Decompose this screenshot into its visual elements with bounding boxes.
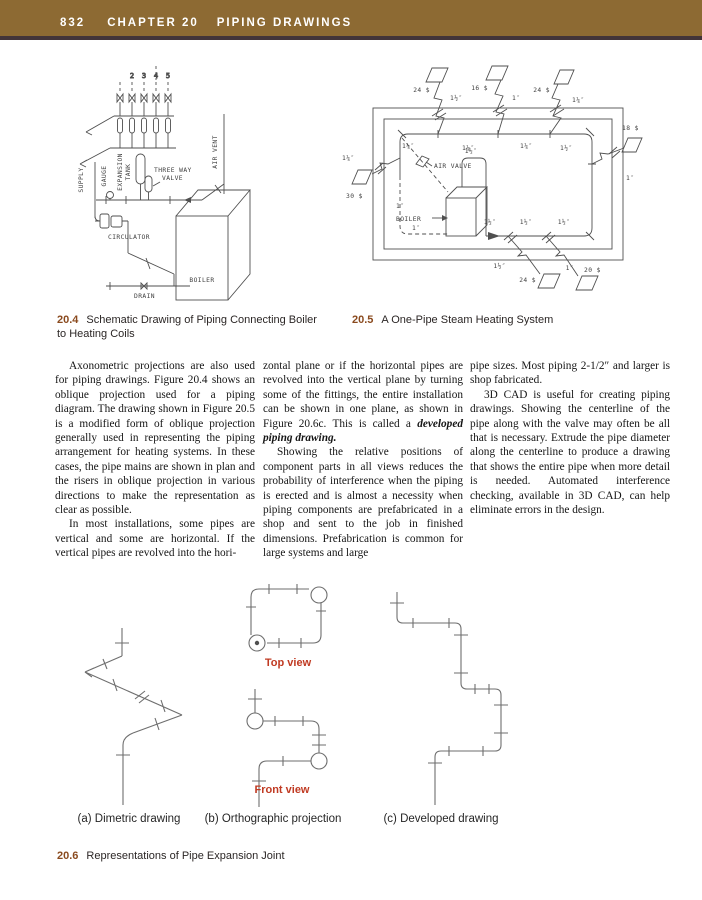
expansion-tank-label-line2: TANK xyxy=(125,164,132,181)
front-view-label: Front view xyxy=(254,784,309,796)
air-valve-label: AIR VALVE xyxy=(434,163,472,170)
radiator-right-label: 18 $ xyxy=(622,125,639,132)
paragraph: pipe sizes. Most piping 2-1/2″ and large… xyxy=(470,359,670,388)
circulator-label: CIRCULATOR xyxy=(108,234,150,241)
riser-right-size: 1″ xyxy=(626,175,634,182)
subfigure-label-a: (a) Dimetric drawing xyxy=(78,813,181,825)
riser-number-3: 3 xyxy=(142,72,146,80)
radiator-top1-label: 24 $ xyxy=(413,87,430,94)
paragraph: Showing the relative positions of compon… xyxy=(263,445,463,560)
body-column-3: pipe sizes. Most piping 2-1/2″ and large… xyxy=(470,359,670,517)
air-valve-symbol xyxy=(416,156,432,167)
chapter-title: PIPING DRAWINGS xyxy=(217,17,352,29)
three-way-valve-label-line2: VALVE xyxy=(162,175,183,182)
riser-top2-size: 1″ xyxy=(512,95,520,102)
bottom-main-size-3: 1½″ xyxy=(558,218,571,226)
main-size-3: 1¼″ xyxy=(520,142,533,150)
radiator-top3-label: 24 $ xyxy=(533,87,550,94)
paragraph: Axonometric projections are also used fo… xyxy=(55,359,255,517)
bottom-main-size-2: 1½″ xyxy=(520,218,533,226)
body-column-1: Axonometric projections are also used fo… xyxy=(55,359,255,561)
figure-20-6-drawing: Top view Front view (a) Dimetric drawing… xyxy=(45,565,685,845)
boiler-label: BOILER xyxy=(396,216,421,223)
drain-lines xyxy=(106,282,190,290)
radiator-left-label: 30 $ xyxy=(346,193,363,200)
expansion-tank-label-line1: EXPANSION xyxy=(117,153,124,191)
subfigure-label-c: (c) Developed drawing xyxy=(383,813,498,825)
chapter-header-bar: 832 CHAPTER 20 PIPING DRAWINGS xyxy=(0,0,702,40)
orthographic-top-view xyxy=(246,584,327,651)
figure-number-20-5: 20.5 xyxy=(352,314,373,326)
subfigure-label-b: (b) Orthographic projection xyxy=(205,813,342,825)
figure-caption-text-20-6: Representations of Pipe Expansion Joint xyxy=(86,850,284,862)
top-risers xyxy=(426,66,574,134)
textbook-page: 832 CHAPTER 20 PIPING DRAWINGS 2 3 4 5 xyxy=(0,0,702,900)
return-size-2: 1″ xyxy=(412,225,420,232)
figure-caption-20-5: 20.5A One-Pipe Steam Heating System xyxy=(352,313,652,327)
figure-number-20-6: 20.6 xyxy=(57,850,78,862)
figure-caption-20-4: 20.4Schematic Drawing of Piping Connecti… xyxy=(57,313,329,341)
developed-drawing xyxy=(390,592,508,805)
figure-caption-text-20-4: Schematic Drawing of Piping Connecting B… xyxy=(57,314,317,340)
boiler-label: BOILER xyxy=(189,277,214,284)
paragraph: zontal plane or if the horizontal pipes … xyxy=(263,359,463,445)
body-column-2: zontal plane or if the horizontal pipes … xyxy=(263,359,463,561)
bottom-riser2-size: 1″ xyxy=(566,265,574,272)
riser-number-5: 5 xyxy=(166,72,170,80)
three-way-valve-label-line1: THREE WAY xyxy=(154,167,192,174)
radiator-bottom2-label: 20 $ xyxy=(584,267,601,274)
main-size-4: 1½″ xyxy=(560,144,573,152)
gauge-label: GAUGE xyxy=(101,166,108,187)
air-vent-label: AIR VENT xyxy=(212,135,219,169)
chapter-label: CHAPTER 20 xyxy=(107,17,199,29)
figure-20-4-drawing: 2 3 4 5 SUPPLY GAUGE EXPANSION TANK AIR … xyxy=(50,58,280,308)
radiator-bottom1-label: 24 $ xyxy=(519,277,536,284)
paragraph: 3D CAD is useful for creating piping dra… xyxy=(470,388,670,518)
bottom-riser1-size: 1½″ xyxy=(493,262,506,270)
dimetric-drawing xyxy=(85,628,182,805)
figure-caption-20-6: 20.6Representations of Pipe Expansion Jo… xyxy=(57,849,457,863)
paragraph: In most installations, some pipes are ve… xyxy=(55,517,255,560)
main-size-1: 1¼″ xyxy=(402,142,415,150)
left-riser xyxy=(352,158,400,184)
riser-number-2: 2 xyxy=(130,72,134,80)
figure-caption-text-20-5: A One-Pipe Steam Heating System xyxy=(381,314,553,326)
figure-number-20-4: 20.4 xyxy=(57,314,78,326)
bottom-risers xyxy=(504,232,598,290)
top-view-label: Top view xyxy=(265,657,312,669)
return-size-1: 1″ xyxy=(396,203,404,210)
riser-top3-size: 1¼″ xyxy=(572,96,585,104)
header-pipe-lines xyxy=(96,114,224,204)
supply-label: SUPPLY xyxy=(78,167,85,192)
figure-20-5-drawing: AIR VALVE BOILER 1½″ 24 $ 1½″ 16 $ 1″ 24… xyxy=(338,58,698,310)
drain-label: DRAIN xyxy=(134,293,155,300)
riser-group: 2 3 4 5 xyxy=(110,66,176,148)
radiator-top2-label: 16 $ xyxy=(471,85,488,92)
radiator-left-size: 1¼″ xyxy=(342,154,355,162)
main-size-2: 1¼″ xyxy=(462,144,475,152)
supply-main-lines xyxy=(80,116,114,221)
bottom-main-size-1: 1½″ xyxy=(484,218,497,226)
circulator-symbol xyxy=(95,214,174,286)
riser-top1-size: 1½″ xyxy=(450,94,463,102)
right-riser xyxy=(592,138,642,164)
page-number: 832 xyxy=(60,17,85,29)
